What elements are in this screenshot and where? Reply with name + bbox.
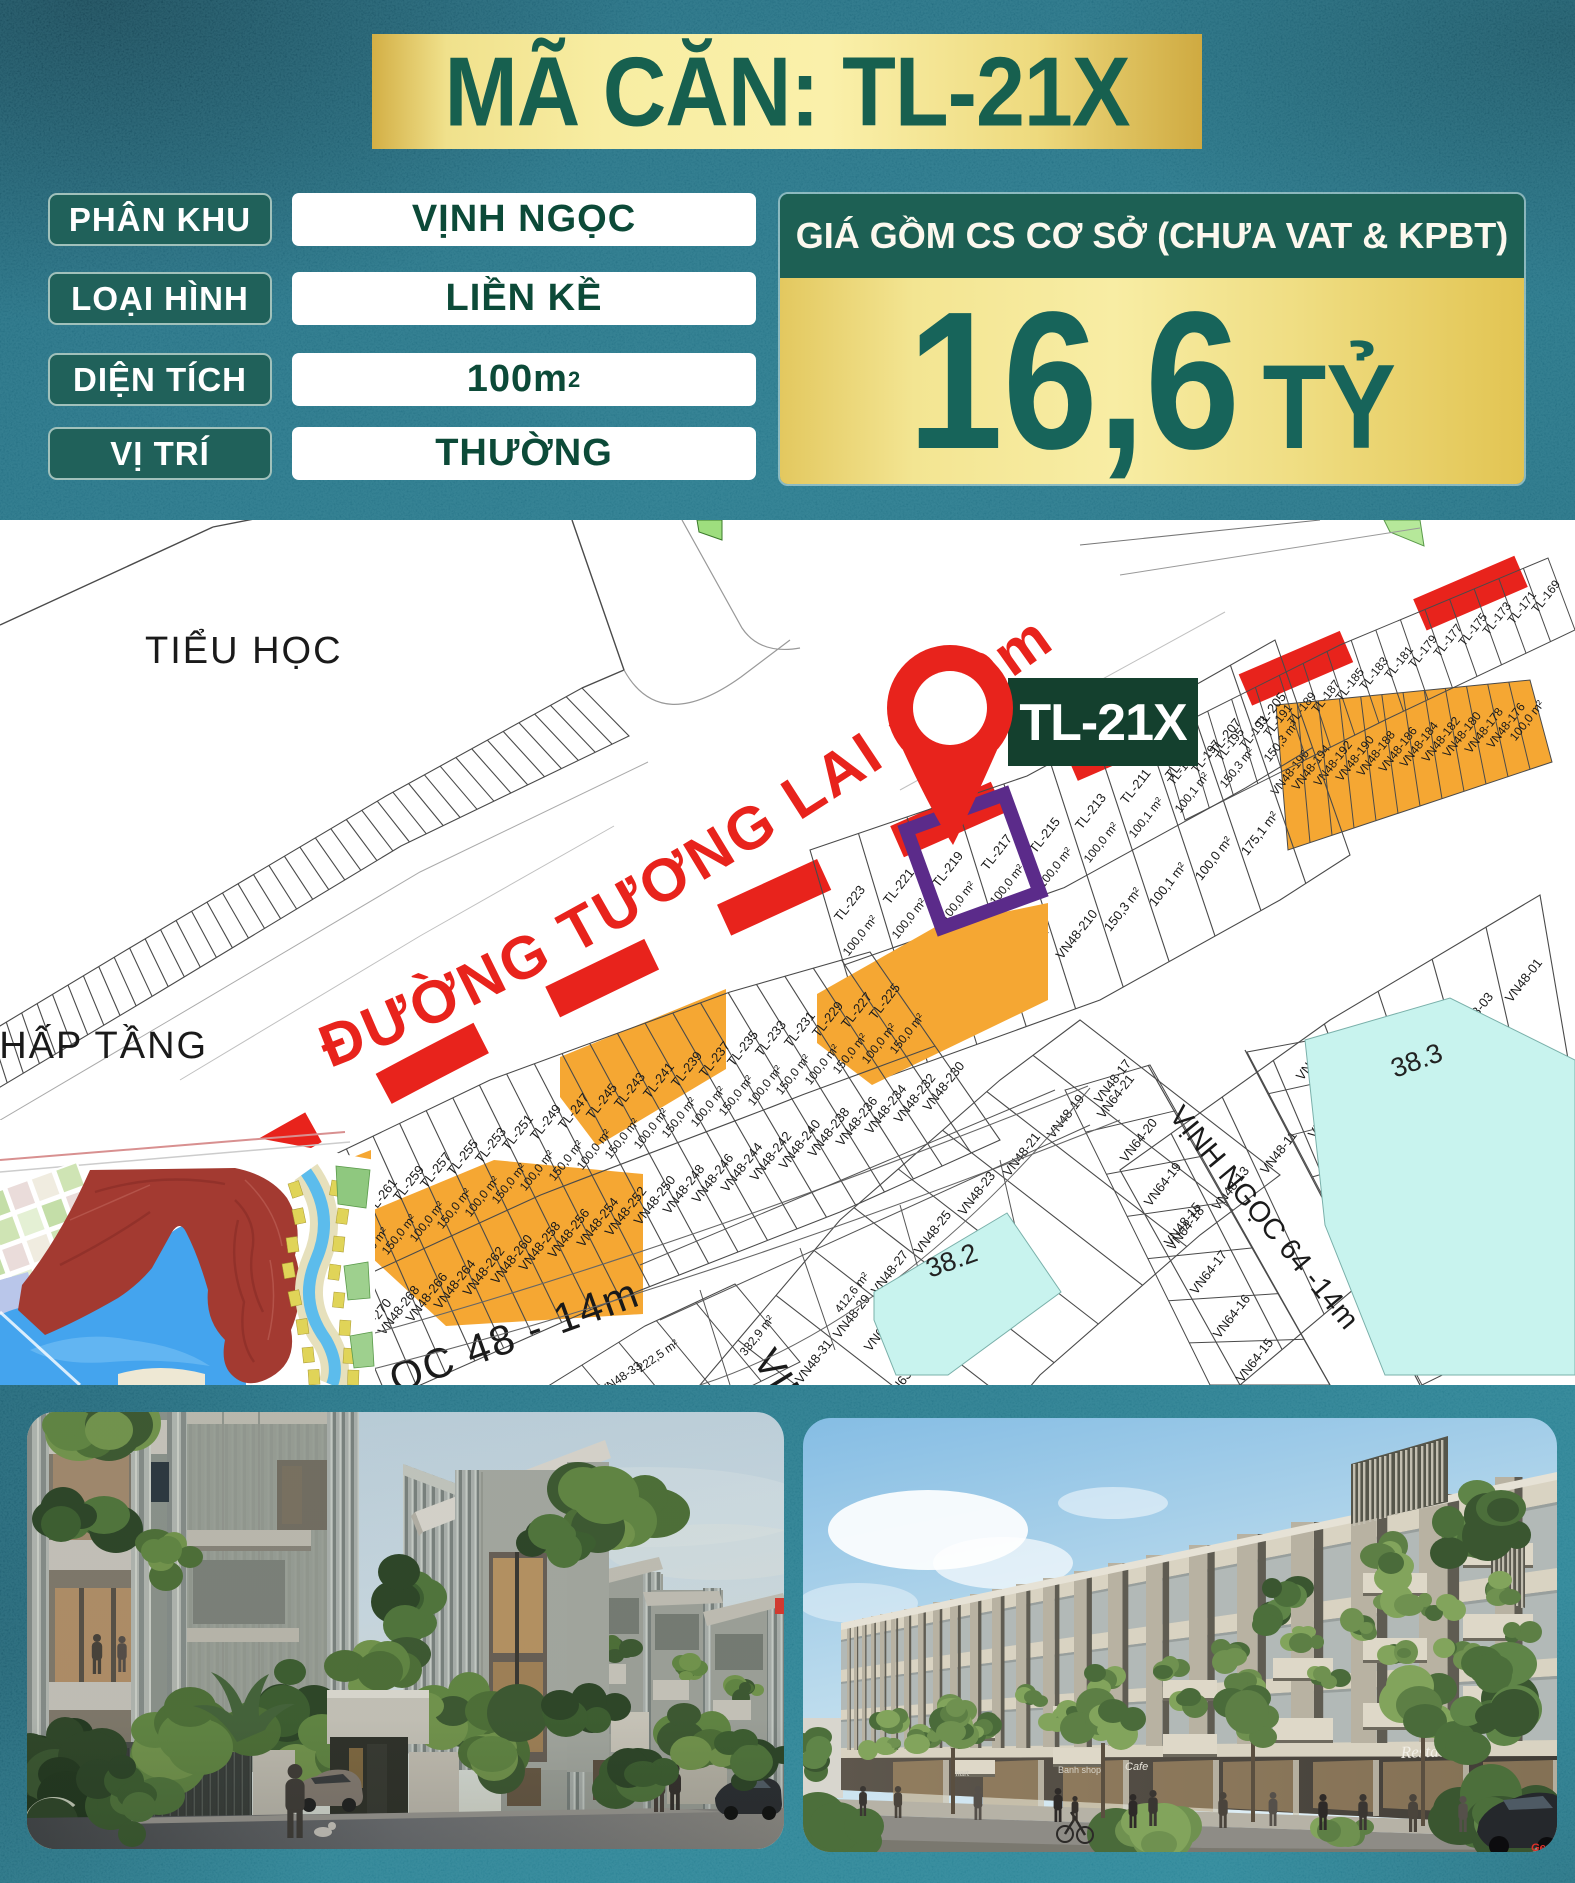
- svg-text:THẤP TẦNG: THẤP TẦNG: [0, 1023, 208, 1067]
- svg-text:TL-21X: TL-21X: [1019, 694, 1188, 752]
- svg-text:Cafe: Cafe: [1125, 1761, 1148, 1773]
- svg-text:Banh shop: Banh shop: [1058, 1765, 1101, 1775]
- svg-text:mart: mart: [953, 1769, 970, 1778]
- svg-text:TIỂU HỌC: TIỂU HỌC: [145, 627, 343, 672]
